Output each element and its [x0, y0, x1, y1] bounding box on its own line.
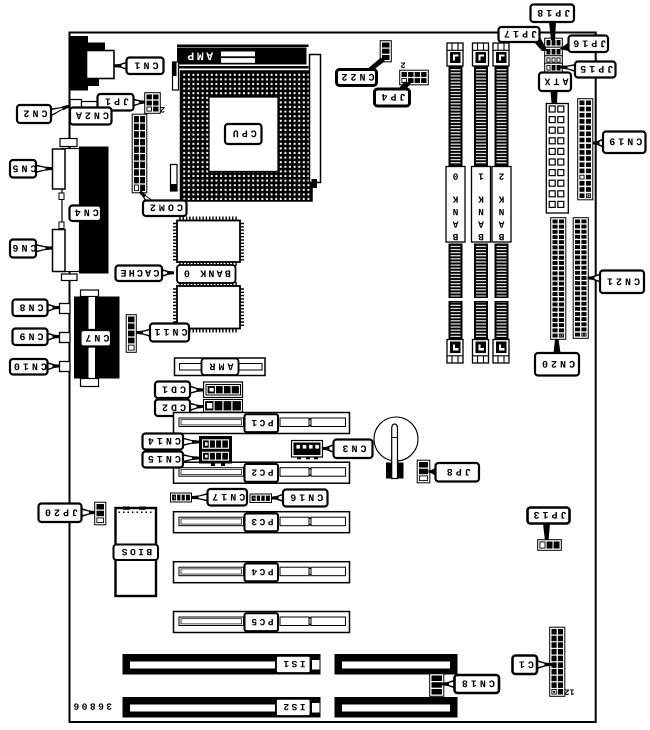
svg-text:CACHE: CACHE [118, 266, 159, 277]
svg-text:JP18: JP18 [534, 6, 570, 17]
svg-text:PC5: PC5 [249, 616, 274, 627]
svg-text:PC3: PC3 [249, 516, 274, 527]
svg-text:2: 2 [160, 104, 165, 114]
svg-text:CN7: CN7 [82, 331, 109, 342]
svg-text:CD1: CD1 [159, 382, 186, 393]
svg-text:CN14: CN14 [145, 434, 181, 445]
svg-text:PC4: PC4 [249, 566, 274, 577]
svg-text:CD2: CD2 [159, 400, 186, 411]
svg-text:CN6: CN6 [9, 241, 36, 252]
svg-text:JP17: JP17 [501, 27, 537, 38]
svg-text:CN19: CN19 [606, 135, 642, 146]
svg-text:0: 0 [452, 171, 458, 182]
svg-text:CN2: CN2 [20, 107, 47, 118]
svg-text:A: A [498, 219, 504, 230]
svg-text:JP16: JP16 [570, 37, 606, 48]
svg-text:A: A [478, 219, 484, 230]
svg-text:K: K [452, 194, 458, 205]
svg-text:AMR: AMR [206, 359, 233, 370]
svg-text:CN2A: CN2A [73, 109, 109, 120]
svg-text:JP4: JP4 [378, 90, 405, 101]
svg-text:B: B [478, 231, 484, 242]
svg-text:CN20: CN20 [539, 357, 575, 368]
svg-text:CN4: CN4 [72, 206, 99, 217]
svg-text:2: 2 [498, 171, 504, 182]
svg-text:12: 12 [564, 687, 574, 697]
svg-text:CN3: CN3 [339, 441, 366, 452]
svg-text:JP13: JP13 [530, 508, 566, 519]
svg-text:PC2: PC2 [249, 467, 274, 478]
svg-text:B: B [452, 231, 458, 242]
svg-text:CN5: CN5 [9, 161, 36, 172]
svg-text:ATX: ATX [541, 74, 568, 85]
svg-text:CN11: CN11 [151, 325, 187, 336]
svg-text:AMP: AMP [185, 49, 213, 62]
svg-text:K: K [478, 194, 484, 205]
svg-text:N: N [498, 206, 504, 217]
svg-text:JP1: JP1 [102, 95, 129, 106]
svg-text:JP8: JP8 [444, 465, 471, 476]
svg-text:BANK 0: BANK 0 [182, 267, 231, 278]
svg-text:36806: 36806 [71, 701, 112, 712]
svg-text:IS2: IS2 [281, 701, 306, 712]
svg-text:JP20: JP20 [42, 506, 78, 517]
svg-text:CN21: CN21 [604, 274, 640, 285]
svg-text:CN1: CN1 [131, 58, 158, 69]
svg-text:N: N [478, 206, 484, 217]
svg-text:K: K [498, 194, 504, 205]
svg-text:CN17: CN17 [209, 490, 245, 501]
svg-text:CN16: CN16 [287, 491, 323, 502]
svg-text:A: A [452, 219, 458, 230]
svg-text:CN22: CN22 [338, 70, 374, 81]
svg-text:CN8: CN8 [16, 300, 43, 311]
svg-text:2: 2 [400, 59, 405, 69]
svg-text:N: N [452, 206, 458, 217]
svg-text:CN9: CN9 [16, 329, 43, 340]
svg-text:BIOS: BIOS [119, 546, 152, 557]
svg-text:CN10: CN10 [11, 359, 47, 370]
svg-text:1: 1 [478, 171, 484, 182]
svg-text:JP15: JP15 [577, 62, 613, 73]
svg-text:B: B [498, 231, 504, 242]
svg-text:C1: C1 [516, 658, 534, 669]
svg-text:CN15: CN15 [145, 452, 181, 463]
svg-text:IS1: IS1 [281, 658, 306, 669]
svg-text:CPU: CPU [230, 127, 257, 138]
svg-text:CN18: CN18 [459, 677, 495, 688]
svg-text:COM2: COM2 [147, 201, 183, 212]
svg-text:PC1: PC1 [249, 417, 274, 428]
